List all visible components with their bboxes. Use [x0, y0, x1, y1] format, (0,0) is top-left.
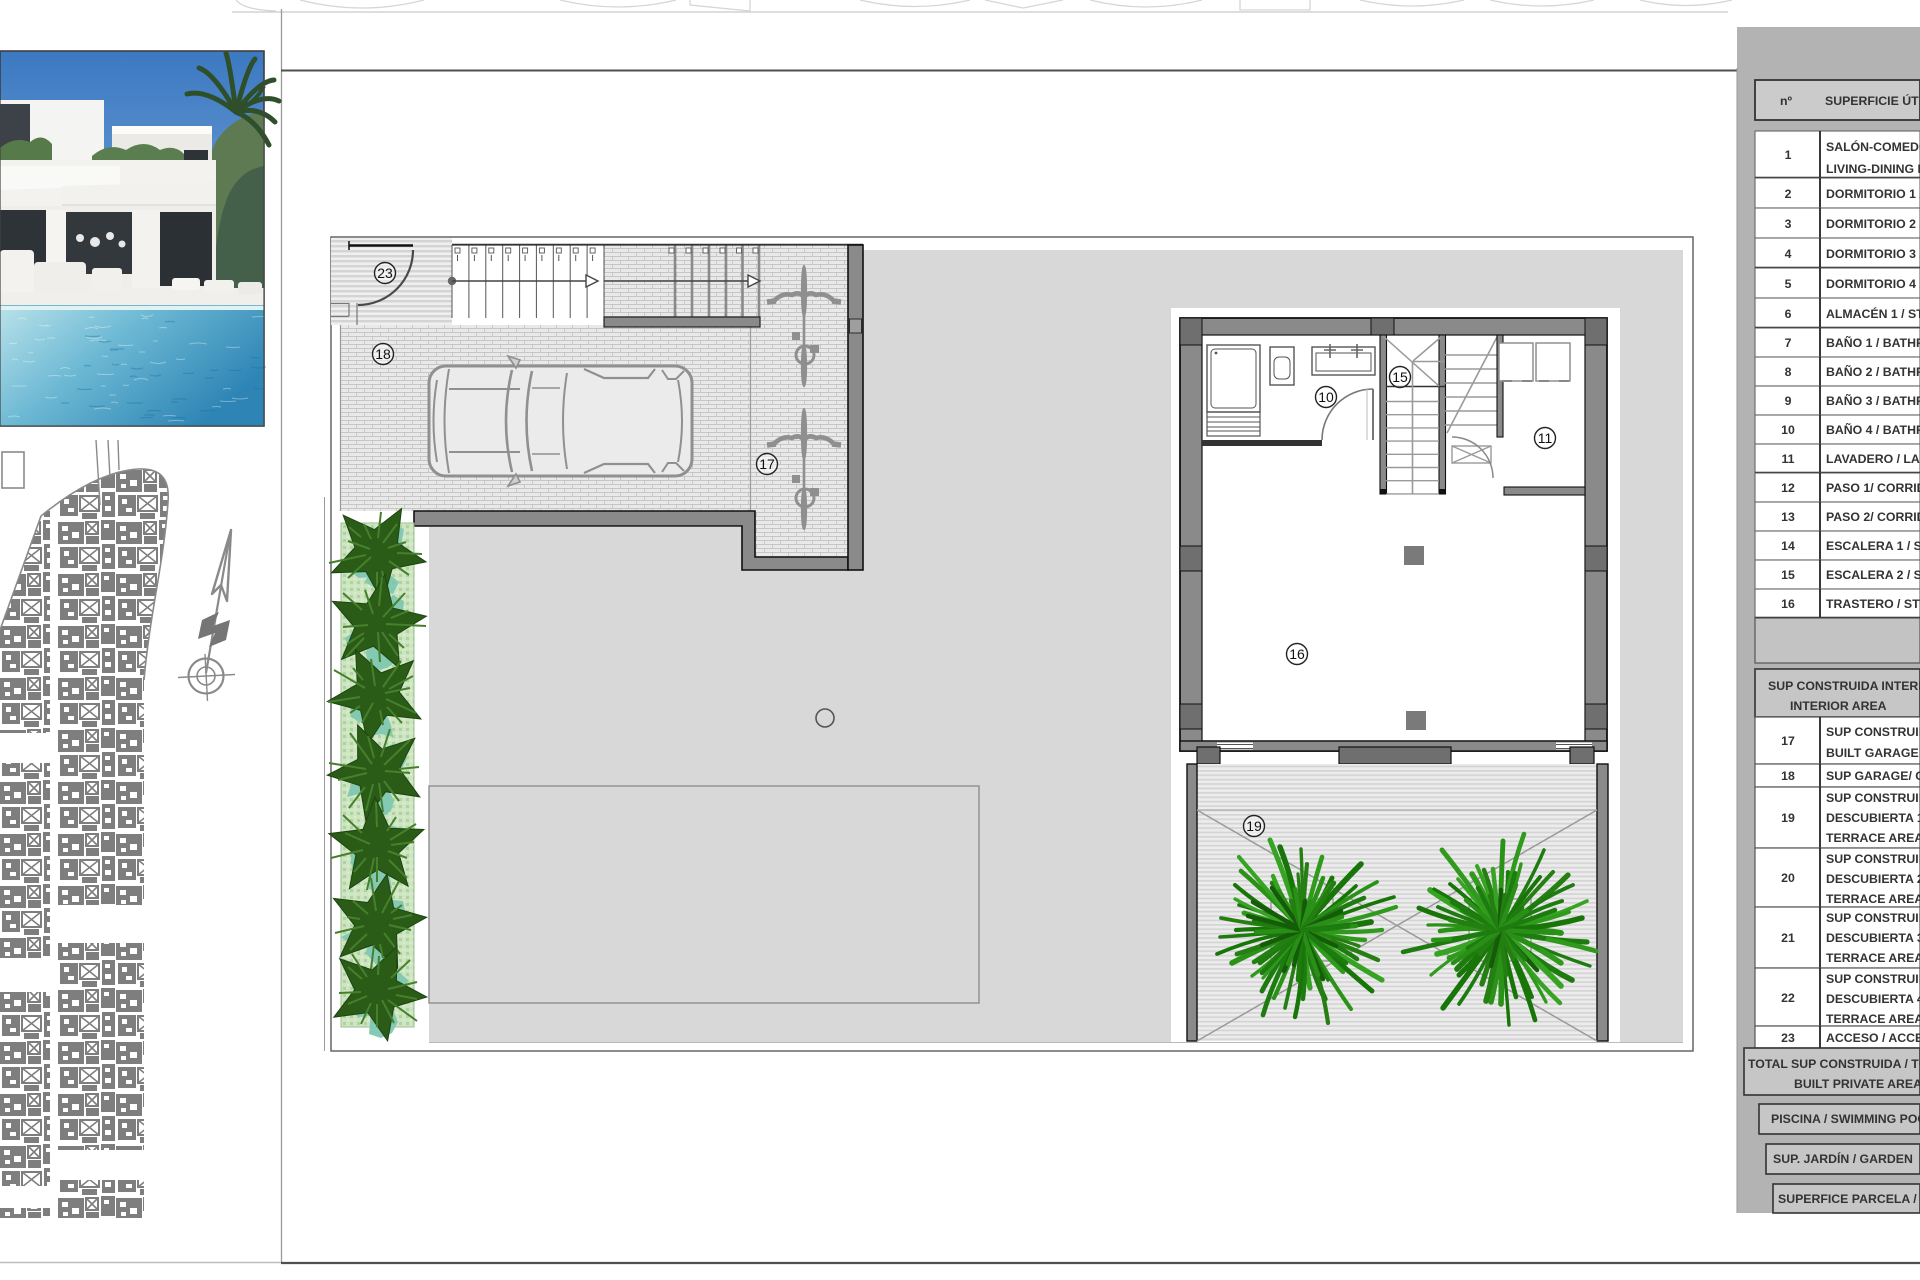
svg-text:23: 23	[1781, 1031, 1795, 1045]
svg-text:ACCESO / ACCESS: ACCESO / ACCESS	[1826, 1031, 1920, 1045]
svg-text:SUP CONSTRUIDA GARAJE /: SUP CONSTRUIDA GARAJE /	[1826, 725, 1920, 739]
svg-text:8: 8	[1785, 365, 1792, 379]
svg-text:SUPERFICIE ÚTIL / USEFUL AREA: SUPERFICIE ÚTIL / USEFUL AREA	[1825, 93, 1920, 108]
svg-text:SUP GARAGE/ GARAGE AREA: SUP GARAGE/ GARAGE AREA	[1826, 769, 1920, 783]
svg-text:DORMITORIO 4 / BEDROOM 4: DORMITORIO 4 / BEDROOM 4	[1826, 277, 1920, 291]
svg-text:23: 23	[377, 265, 393, 281]
svg-text:PASO 1/ CORRIDOR 1: PASO 1/ CORRIDOR 1	[1826, 481, 1920, 495]
svg-text:BAÑO 1 / BATHROOM 1: BAÑO 1 / BATHROOM 1	[1826, 335, 1920, 350]
svg-text:SUPERFICE PARCELA / PLOT: SUPERFICE PARCELA / PLOT	[1778, 1192, 1920, 1206]
svg-text:19: 19	[1246, 818, 1262, 834]
svg-text:10: 10	[1781, 423, 1795, 437]
svg-text:SUP CONSTRUIDA: SUP CONSTRUIDA	[1826, 911, 1920, 925]
svg-text:SUP CONSTRUIDA INTERIOR /: SUP CONSTRUIDA INTERIOR /	[1768, 679, 1920, 693]
svg-text:16: 16	[1781, 597, 1795, 611]
svg-text:10: 10	[1318, 389, 1334, 405]
svg-text:DORMITORIO 1 / BEDROOM 1: DORMITORIO 1 / BEDROOM 1	[1826, 187, 1920, 201]
svg-text:3: 3	[1785, 217, 1792, 231]
svg-text:TERRACE AREA 4: TERRACE AREA 4	[1826, 1012, 1920, 1026]
svg-text:TERRACE AREA 3: TERRACE AREA 3	[1826, 951, 1920, 965]
svg-text:11: 11	[1538, 430, 1553, 446]
svg-text:17: 17	[1781, 734, 1795, 748]
svg-text:19: 19	[1781, 811, 1795, 825]
svg-text:20: 20	[1781, 871, 1795, 885]
svg-text:DORMITORIO 3 / BEDROOM 3: DORMITORIO 3 / BEDROOM 3	[1826, 247, 1920, 261]
svg-text:18: 18	[375, 346, 391, 362]
svg-text:DESCUBIERTA 3 / BUILT: DESCUBIERTA 3 / BUILT	[1826, 931, 1920, 945]
svg-text:ESCALERA 1 / STAIRS 1: ESCALERA 1 / STAIRS 1	[1826, 539, 1920, 553]
svg-text:17: 17	[759, 456, 775, 472]
svg-text:21: 21	[1781, 931, 1795, 945]
svg-text:LIVING-DINING ROOM: LIVING-DINING ROOM	[1826, 162, 1920, 176]
svg-text:BUILT PRIVATE AREA: BUILT PRIVATE AREA	[1794, 1077, 1920, 1091]
svg-text:nº: nº	[1780, 94, 1793, 108]
svg-text:DESCUBIERTA 4 / BUILT: DESCUBIERTA 4 / BUILT	[1826, 992, 1920, 1006]
svg-text:SUP CONSTRUIDA: SUP CONSTRUIDA	[1826, 852, 1920, 866]
svg-text:TERRACE AREA 1: TERRACE AREA 1	[1826, 831, 1920, 845]
svg-text:LAVADERO / LAUNDRY: LAVADERO / LAUNDRY	[1826, 452, 1920, 466]
svg-text:5: 5	[1785, 277, 1792, 291]
svg-text:13: 13	[1781, 510, 1795, 524]
svg-text:BUILT GARAGE AREA: BUILT GARAGE AREA	[1826, 746, 1920, 760]
svg-text:16: 16	[1289, 646, 1305, 662]
svg-text:TOTAL SUP CONSTRUIDA / TOTAL: TOTAL SUP CONSTRUIDA / TOTAL	[1748, 1057, 1920, 1071]
svg-text:BAÑO 2 / BATHROOM 2: BAÑO 2 / BATHROOM 2	[1826, 364, 1920, 379]
svg-text:15: 15	[1781, 568, 1795, 582]
svg-text:2: 2	[1785, 187, 1792, 201]
svg-text:ALMACÉN 1 / STORAGE 1: ALMACÉN 1 / STORAGE 1	[1826, 306, 1920, 321]
svg-text:14: 14	[1781, 539, 1795, 553]
svg-text:SUP CONSTRUIDA: SUP CONSTRUIDA	[1826, 972, 1920, 986]
svg-text:4: 4	[1785, 247, 1792, 261]
svg-text:SUP CONSTRUIDA: SUP CONSTRUIDA	[1826, 791, 1920, 805]
svg-text:ESCALERA 2 / STAIRS 2: ESCALERA 2 / STAIRS 2	[1826, 568, 1920, 582]
svg-text:15: 15	[1392, 369, 1408, 385]
svg-text:7: 7	[1785, 336, 1792, 350]
svg-text:BAÑO 4 / BATHROOM 4: BAÑO 4 / BATHROOM 4	[1826, 422, 1920, 437]
svg-text:INTERIOR AREA: INTERIOR AREA	[1790, 699, 1887, 713]
svg-text:PISCINA / SWIMMING POOL: PISCINA / SWIMMING POOL	[1771, 1112, 1920, 1126]
svg-text:11: 11	[1782, 452, 1795, 466]
svg-text:TRASTERO / STORAGE: TRASTERO / STORAGE	[1826, 597, 1920, 611]
svg-text:TERRACE AREA 2: TERRACE AREA 2	[1826, 892, 1920, 906]
svg-text:DESCUBIERTA 1 / BUILT: DESCUBIERTA 1 / BUILT	[1826, 811, 1920, 825]
svg-text:12: 12	[1781, 481, 1795, 495]
svg-text:SUP. JARDÍN / GARDEN: SUP. JARDÍN / GARDEN	[1773, 1151, 1913, 1166]
svg-text:18: 18	[1781, 769, 1795, 783]
svg-text:6: 6	[1785, 307, 1792, 321]
svg-text:PASO 2/ CORRIDOR 2: PASO 2/ CORRIDOR 2	[1826, 510, 1920, 524]
svg-text:DORMITORIO 2 / BEDROOM 2: DORMITORIO 2 / BEDROOM 2	[1826, 217, 1920, 231]
svg-text:DESCUBIERTA 2 / BUILT: DESCUBIERTA 2 / BUILT	[1826, 872, 1920, 886]
svg-text:BAÑO 3 / BATHROOM 3: BAÑO 3 / BATHROOM 3	[1826, 393, 1920, 408]
svg-text:22: 22	[1781, 991, 1795, 1005]
svg-text:1: 1	[1785, 148, 1792, 162]
svg-text:9: 9	[1785, 394, 1792, 408]
svg-text:SALÓN-COMEDOR /: SALÓN-COMEDOR /	[1826, 139, 1920, 154]
